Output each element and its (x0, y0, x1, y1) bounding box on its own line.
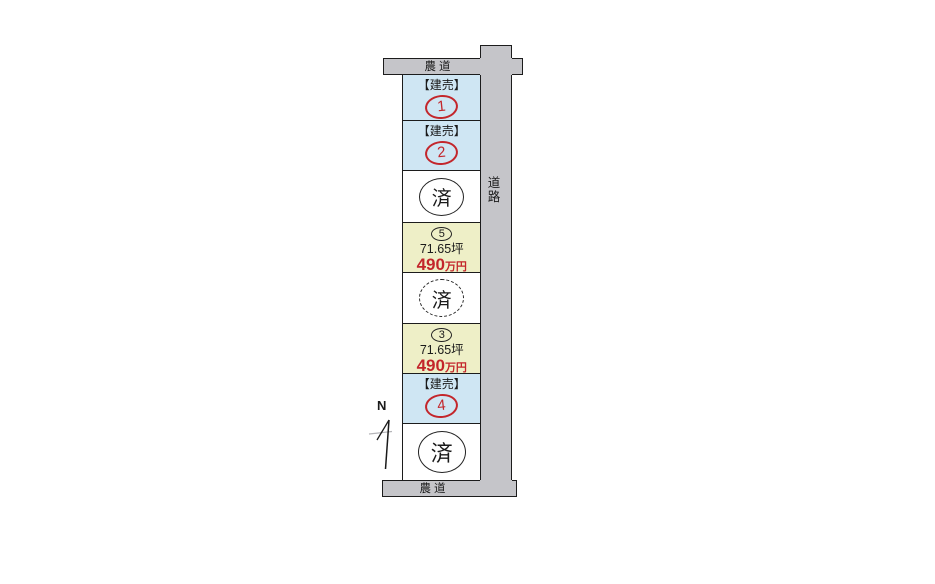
north-arrow-icon (363, 410, 397, 474)
lot-sold-3: 済 (402, 423, 482, 482)
sold-mark-circle: 済 (419, 178, 464, 216)
price-value: 490 (417, 356, 445, 375)
lot-number-circle: 4 (424, 392, 459, 419)
price-unit: 万円 (445, 261, 467, 273)
lot-number-circle: 3 (431, 328, 452, 342)
sold-mark-circle-dashed: 済 (419, 279, 464, 317)
road-label-side: 道路 (487, 177, 501, 204)
lot-sold-1: 済 (402, 170, 482, 224)
lot-kenbai-2: 【建売】 2 (402, 120, 482, 172)
lot-number-circle: 5 (431, 227, 452, 241)
kenbai-tag: 【建売】 (418, 78, 466, 92)
lot-kenbai-4: 【建売】 4 (402, 373, 482, 425)
road-label-top: 農道 (408, 60, 470, 74)
lot-price-3: 3 71.65坪 490万円 (402, 323, 482, 375)
lot-price-5: 5 71.65坪 490万円 (402, 222, 482, 274)
price-unit: 万円 (445, 362, 467, 374)
road-junction-top (480, 58, 512, 75)
sold-mark-circle: 済 (418, 431, 466, 473)
road-vertical (480, 45, 512, 497)
road-label-bottom: 農道 (403, 482, 465, 496)
lot-kenbai-1: 【建売】 1 (402, 74, 482, 122)
price-value: 490 (417, 255, 445, 274)
lot-number-circle: 2 (424, 139, 459, 166)
lot-sold-2: 済 (402, 272, 482, 325)
lot-plan-diagram: 【建売】 1 【建売】 2 済 5 71.65坪 490万円 済 3 71.65… (0, 0, 935, 584)
road-junction-bottom (480, 480, 512, 496)
kenbai-tag: 【建売】 (418, 124, 466, 138)
lot-number-circle: 1 (424, 93, 459, 120)
kenbai-tag: 【建売】 (418, 377, 466, 391)
